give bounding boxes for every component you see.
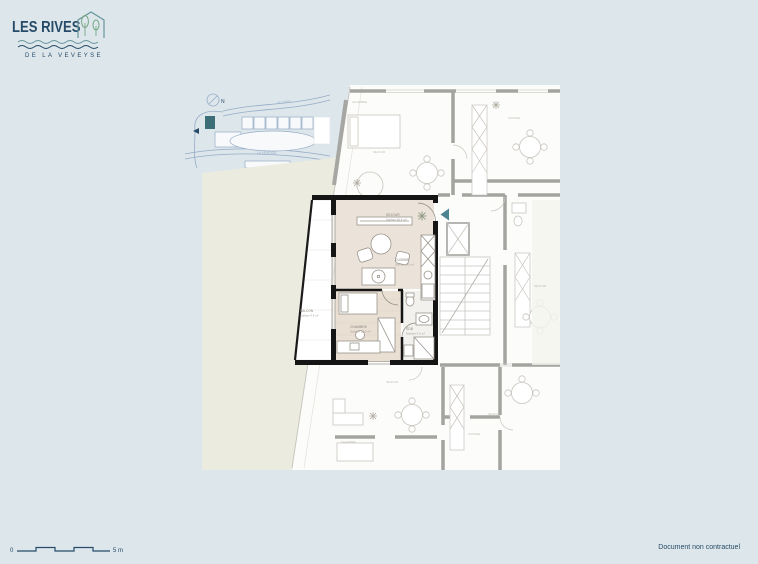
svg-text:SEJOUR: SEJOUR xyxy=(373,150,386,154)
site-entrance-arrow xyxy=(193,128,199,134)
room-surface-sejour: Surface 26.4 m² xyxy=(386,218,407,222)
scale-bar: 0 5 m xyxy=(10,542,130,556)
svg-text:CHAMBRE: CHAMBRE xyxy=(341,440,356,444)
svg-text:SEJOUR: SEJOUR xyxy=(488,412,501,416)
plan-document-page: { "page": { "background": "#dde7eb" }, "… xyxy=(0,0,758,564)
highlighted-apartment xyxy=(295,197,438,365)
floor-plan: SEJOUR Surface 26.4 m² CUISINE Surface 6… xyxy=(200,85,560,470)
room-label-sdb: SDB xyxy=(406,327,414,331)
house-trees-icon xyxy=(78,12,104,38)
room-label-chambre: CHAMBRE xyxy=(350,325,368,329)
logo-title: LES RIVES xyxy=(12,19,81,36)
room-surface-sdb: Surface 4.2 m² xyxy=(406,332,425,336)
waves-icon xyxy=(18,41,98,49)
scale-end-label: 5 m xyxy=(113,548,123,554)
room-surface-cuisine: Surface 6.1 m² xyxy=(395,263,414,267)
svg-text:SEJOUR: SEJOUR xyxy=(534,284,547,288)
room-label-cuisine: CUISINE xyxy=(395,258,409,262)
svg-text:CHAMBRE: CHAMBRE xyxy=(352,100,367,104)
kitchen-units xyxy=(421,235,435,300)
sejour-plant-icon xyxy=(418,212,427,221)
logo-subtitle: DE LA VEVEYSE xyxy=(25,53,103,58)
scale-bar-line xyxy=(17,548,110,552)
logo-graphic: LES RIVES DE LA VEVEYSE xyxy=(12,8,122,58)
scale-start-label: 0 xyxy=(10,548,14,554)
room-label-sejour: SEJOUR xyxy=(386,213,400,217)
tinted-room xyxy=(532,200,560,365)
svg-text:CUISINE: CUISINE xyxy=(468,432,480,436)
svg-text:SEJOUR: SEJOUR xyxy=(386,380,399,384)
room-surface-balcon: Surface 4.6 m² xyxy=(300,314,318,318)
room-label-balcon: BALCON xyxy=(300,309,314,313)
footer-disclaimer: Document non contractuel xyxy=(658,544,740,551)
svg-text:CUISINE: CUISINE xyxy=(508,116,520,120)
room-surface-chambre: Surface 13.0 m² xyxy=(350,330,371,334)
logo: LES RIVES DE LA VEVEYSE xyxy=(12,8,122,58)
